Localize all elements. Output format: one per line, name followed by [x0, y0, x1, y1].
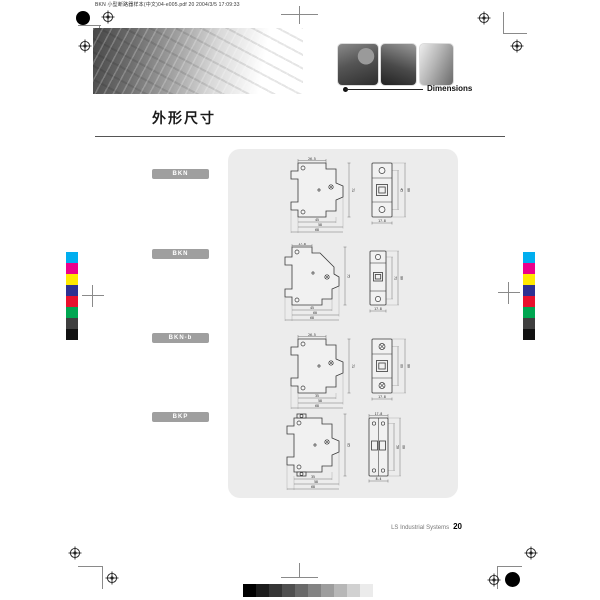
section-rule	[345, 89, 423, 90]
dimension-label: 58	[318, 399, 322, 403]
crop-mark	[508, 282, 509, 304]
gray-swatch	[321, 584, 334, 597]
color-swatch	[523, 318, 535, 329]
gray-swatch	[256, 584, 269, 597]
side-view	[291, 339, 343, 393]
crop-mark	[281, 14, 318, 15]
footer-brand: LS Industrial Systems	[391, 525, 449, 531]
color-swatch	[66, 307, 78, 318]
model-badge-bkn2: BKN	[152, 249, 209, 259]
model-badge-bkn-b: BKN-b	[152, 333, 209, 343]
crop-mark	[78, 25, 101, 26]
front-view	[372, 163, 392, 217]
dimension-label: 45	[315, 218, 319, 222]
color-swatch	[523, 263, 535, 274]
dimension-label: 80	[407, 188, 411, 192]
color-swatch	[66, 285, 78, 296]
color-calibration-bar	[66, 252, 78, 340]
dimension-label: 71	[351, 188, 355, 192]
dimension-label: 68	[311, 485, 315, 489]
dimension-label: 66	[400, 364, 404, 368]
color-swatch	[523, 274, 535, 285]
grayscale-calibration-bar	[243, 584, 373, 597]
gray-swatch	[282, 584, 295, 597]
registration-mark-icon	[487, 573, 501, 587]
side-view	[287, 414, 339, 476]
gray-swatch	[308, 584, 321, 597]
registration-mark-icon	[78, 39, 92, 53]
dimension-label: 26.5	[308, 333, 316, 337]
dimension-label: 80	[407, 364, 411, 368]
dimension-label: 60	[402, 445, 406, 449]
dimension-label: 17.8	[378, 395, 386, 399]
catalog-page: BKN 小型断路器样本(中文)04-e005.pdf 20 2004/3/5 1…	[0, 0, 600, 600]
dimension-label: 50	[396, 445, 400, 449]
crop-mark	[78, 566, 103, 567]
gray-swatch	[334, 584, 347, 597]
dimension-label: 17.8	[374, 307, 382, 311]
print-control-dot	[76, 11, 90, 25]
hero-image	[93, 28, 303, 94]
dimension-label: 58	[314, 480, 318, 484]
registration-mark-icon	[105, 571, 119, 585]
title-divider	[95, 136, 505, 137]
front-view	[370, 251, 386, 305]
crop-mark	[503, 33, 527, 34]
page-number: 20	[453, 522, 462, 531]
crop-mark	[498, 292, 520, 293]
page-footer: LS Industrial Systems20	[330, 516, 462, 534]
dimension-label: 68	[310, 316, 314, 320]
registration-mark-icon	[68, 546, 82, 560]
print-control-dot	[505, 572, 520, 587]
page-title: 外形尺寸	[152, 108, 216, 128]
front-view	[369, 418, 388, 476]
dimension-label: 17.8	[378, 219, 386, 223]
crop-mark	[92, 285, 93, 307]
dimension-label: 75	[347, 274, 351, 278]
gray-swatch	[269, 584, 282, 597]
dimension-label: 17.8	[375, 412, 383, 416]
registration-mark-icon	[101, 10, 115, 24]
color-swatch	[523, 252, 535, 263]
color-swatch	[66, 329, 78, 340]
model-badge-bkn: BKN	[152, 169, 209, 179]
gray-swatch	[347, 584, 360, 597]
color-swatch	[66, 263, 78, 274]
color-swatch	[66, 274, 78, 285]
color-swatch	[523, 285, 535, 296]
registration-mark-icon	[524, 546, 538, 560]
color-swatch	[523, 307, 535, 318]
dimension-label: 35	[311, 475, 315, 479]
color-swatch	[66, 252, 78, 263]
crop-mark	[299, 6, 300, 24]
dimension-label: 17.8	[298, 243, 306, 246]
dimension-label: 68	[315, 228, 319, 232]
dimension-label: 71	[351, 364, 355, 368]
side-view	[285, 247, 339, 305]
dimension-label: 35	[315, 394, 319, 398]
print-slug-text: BKN 小型断路器样本(中文)04-e005.pdf 20 2004/3/5 1…	[95, 1, 240, 8]
bkn-2-dimension-drawing: 17.8 45 60 68 75 71 80 17.8	[268, 243, 428, 327]
dimension-label: 8.4	[376, 477, 382, 481]
gray-swatch	[243, 584, 256, 597]
crop-mark	[503, 12, 504, 34]
construction-photo	[337, 43, 379, 86]
dimension-label: 71	[394, 276, 398, 280]
color-swatch	[66, 318, 78, 329]
section-label: Dimensions	[427, 84, 472, 93]
color-swatch	[66, 296, 78, 307]
dimension-label: 80	[400, 276, 404, 280]
crop-mark	[497, 566, 522, 567]
crop-mark	[102, 566, 103, 589]
front-view	[372, 339, 392, 393]
bkn-dimension-drawing: 26.5 45 58 68 71 45 80 17.8	[272, 157, 432, 241]
equipment-photo	[380, 43, 417, 86]
color-swatch	[523, 296, 535, 307]
gray-swatch	[295, 584, 308, 597]
dimension-label: 26.5	[308, 157, 316, 161]
dimension-label: 65	[347, 443, 351, 447]
dimension-label: 45	[310, 306, 314, 310]
color-calibration-bar	[523, 252, 535, 340]
crop-mark	[299, 563, 300, 578]
side-view	[291, 163, 343, 217]
crop-mark	[281, 577, 318, 578]
gray-swatch	[360, 584, 373, 597]
dimension-label: 45	[400, 188, 404, 192]
dimension-label: 58	[318, 223, 322, 227]
building-photo	[419, 43, 454, 86]
registration-mark-icon	[477, 11, 491, 25]
model-badge-bkp: BKP	[152, 412, 209, 422]
color-swatch	[523, 329, 535, 340]
bkp-dimension-drawing: 35 58 68 65 17.8 50 60 8.4	[268, 412, 428, 496]
crop-mark	[82, 295, 104, 296]
registration-mark-icon	[510, 39, 524, 53]
dimension-label: 60	[313, 311, 317, 315]
dimension-label: 68	[315, 404, 319, 408]
bkn-b-dimension-drawing: 26.5 35 58 68 71 66 80 17.8	[272, 333, 432, 417]
